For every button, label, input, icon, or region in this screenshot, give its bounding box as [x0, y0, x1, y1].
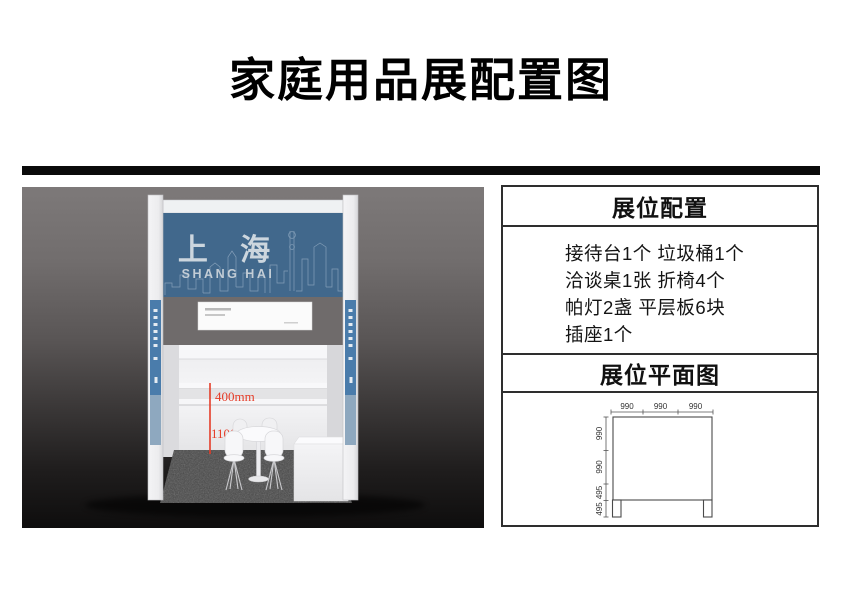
plan-dim-top: 990	[689, 402, 703, 411]
config-items: 接待台1个 垃圾桶1个 洽谈桌1张 折椅4个 帕灯2盏 平层板6块 插座1个	[503, 227, 817, 355]
plan-dim-left: 495	[595, 502, 604, 516]
booth-sign-cn: 上 海	[178, 234, 282, 267]
plan-dim-top: 990	[620, 402, 634, 411]
config-item: 插座1个	[565, 321, 811, 348]
plan-dim-left: 990	[595, 460, 604, 474]
fascia-underside	[163, 297, 343, 345]
booth-top-beam	[163, 200, 343, 213]
config-section-title: 展位配置	[503, 187, 817, 227]
floor-plan-svg: 990 990 990 990 990 495 495	[595, 399, 735, 527]
config-item: 接待台1个 垃圾桶1个	[565, 240, 811, 267]
booth-render-stage: 上 海 SHANG HAI	[22, 187, 484, 528]
plan-section-title: 展位平面图	[503, 355, 817, 393]
page-title: 家庭用品展配置图	[0, 44, 842, 110]
blue-fascia: 上 海 SHANG HAI	[163, 213, 343, 297]
booth-render-svg: 上 海 SHANG HAI	[22, 187, 484, 528]
info-panel: 展位配置 接待台1个 垃圾桶1个 洽谈桌1张 折椅4个 帕灯2盏 平层板6块 插…	[501, 185, 819, 527]
plan-dim-top: 990	[654, 402, 668, 411]
config-item: 洽谈桌1张 折椅4个	[565, 267, 811, 294]
config-item: 帕灯2盏 平层板6块	[565, 294, 811, 321]
plan-dim-left: 990	[595, 426, 604, 440]
dim-label-400: 400mm	[215, 389, 255, 404]
plan-left-post	[613, 500, 622, 517]
title-divider-bar	[22, 166, 820, 175]
floor-plan-area: 990 990 990 990 990 495 495	[503, 393, 817, 525]
plan-dim-left: 495	[595, 485, 604, 499]
plan-right-post	[704, 500, 713, 517]
booth-sign-en: SHANG HAI	[182, 267, 275, 281]
plan-booth-outline	[613, 417, 712, 500]
